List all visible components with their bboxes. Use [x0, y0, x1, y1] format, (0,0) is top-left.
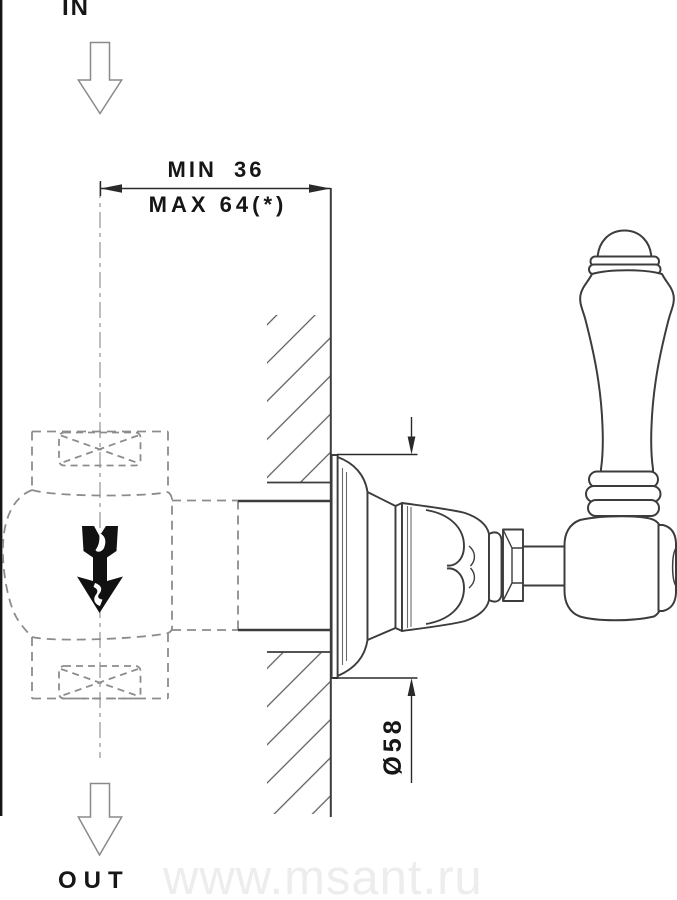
- watermark-text: www.msant.ru: [163, 854, 483, 900]
- dimension-diameter-label: Ø58: [381, 704, 407, 788]
- outlet-label: OUT: [58, 869, 130, 893]
- handle-grip: [580, 270, 674, 473]
- handle-dome: [598, 231, 652, 260]
- inlet-label: IN: [62, 0, 90, 20]
- dimension-min-label: MIN 36: [100, 159, 332, 181]
- technical-drawing: IN MIN 36 MAX 64(*) Ø58 OUT www.msant.ru: [0, 0, 677, 900]
- wall-section: [267, 188, 331, 817]
- flow-direction-arrow-icon: [77, 526, 123, 613]
- dimension-max-label: MAX 64(*): [96, 194, 340, 216]
- pipe-through-wall: [238, 501, 332, 630]
- outlet-arrow-icon: [78, 784, 121, 856]
- handle-hub: [565, 516, 664, 620]
- lever-handle: [565, 231, 677, 621]
- drawing-canvas: [0, 0, 677, 900]
- valve-body-hidden: [3, 432, 238, 699]
- escutcheon-bonnet: [332, 455, 565, 678]
- inlet-arrow-icon: [78, 43, 121, 114]
